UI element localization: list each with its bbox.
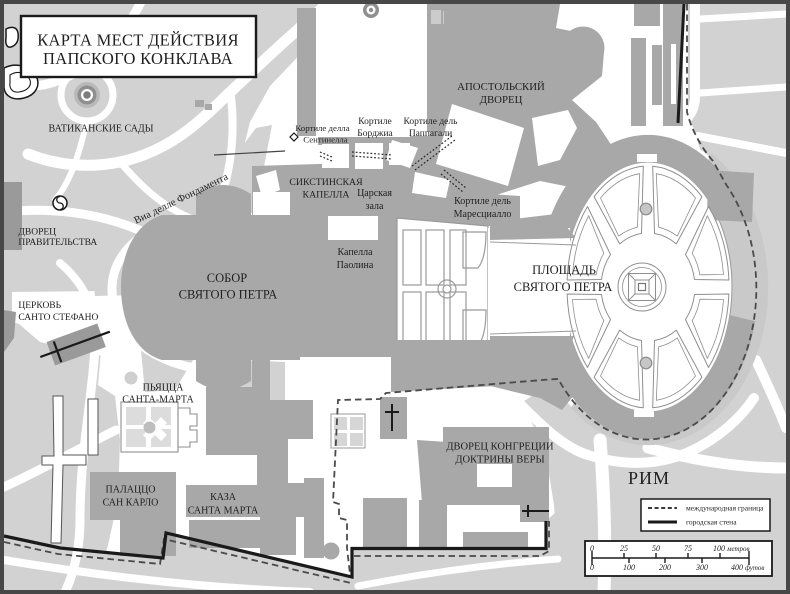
svg-text:300: 300 <box>695 563 708 572</box>
svg-text:КАПЕЛЛА: КАПЕЛЛА <box>303 190 350 201</box>
svg-text:городская стена: городская стена <box>686 518 737 527</box>
svg-text:ДВОРЕЦ КОНГРЕЦИИ: ДВОРЕЦ КОНГРЕЦИИ <box>446 442 554 453</box>
svg-text:САНТА МАРТА: САНТА МАРТА <box>188 506 259 517</box>
svg-text:0: 0 <box>590 544 594 553</box>
svg-text:АПОСТОЛЬСКИЙ: АПОСТОЛЬСКИЙ <box>457 81 545 93</box>
svg-text:Сентинелла: Сентинелла <box>303 135 348 145</box>
svg-text:ПЬЯЦЦА: ПЬЯЦЦА <box>143 383 185 394</box>
svg-text:Паппагали: Паппагали <box>409 129 452 139</box>
svg-text:ПРАВИТЕЛЬСТВА: ПРАВИТЕЛЬСТВА <box>18 238 97 248</box>
svg-text:ПЛОЩАДЬ: ПЛОЩАДЬ <box>532 263 596 277</box>
svg-text:Паолина: Паолина <box>337 260 374 271</box>
svg-text:САН КАРЛО: САН КАРЛО <box>103 498 159 509</box>
svg-text:ПАЛАЦЦО: ПАЛАЦЦО <box>106 485 156 496</box>
svg-text:САНТА-МАРТА: САНТА-МАРТА <box>122 395 194 406</box>
svg-text:Кортиле: Кортиле <box>358 117 391 127</box>
svg-text:РИМ: РИМ <box>628 468 670 488</box>
svg-text:СВЯТОГО ПЕТРА: СВЯТОГО ПЕТРА <box>514 280 613 294</box>
svg-text:зала: зала <box>366 201 384 212</box>
svg-text:Борджиа: Борджиа <box>357 129 393 139</box>
svg-text:ЦЕРКОВЬ: ЦЕРКОВЬ <box>18 301 61 311</box>
svg-text:международная граница: международная граница <box>686 504 764 513</box>
svg-text:КАРТА МЕСТ ДЕЙСТВИЯ: КАРТА МЕСТ ДЕЙСТВИЯ <box>37 31 239 50</box>
svg-text:400 футов: 400 футов <box>731 563 764 572</box>
svg-text:СИКСТИНСКАЯ: СИКСТИНСКАЯ <box>289 177 363 188</box>
svg-text:САНТО СТЕФАНО: САНТО СТЕФАНО <box>18 313 98 323</box>
svg-text:75: 75 <box>684 544 692 553</box>
svg-text:КАЗА: КАЗА <box>210 492 237 503</box>
svg-text:25: 25 <box>620 544 628 553</box>
svg-text:50: 50 <box>652 544 660 553</box>
svg-text:ДВОРЕЦ: ДВОРЕЦ <box>480 94 523 106</box>
svg-text:ДОКТРИНЫ ВЕРЫ: ДОКТРИНЫ ВЕРЫ <box>455 455 544 466</box>
svg-text:100: 100 <box>623 563 635 572</box>
svg-text:200: 200 <box>659 563 671 572</box>
svg-text:Кортиле делла: Кортиле делла <box>295 123 349 133</box>
svg-text:СОБОР: СОБОР <box>207 271 247 285</box>
svg-text:Капелла: Капелла <box>337 247 373 258</box>
svg-text:ПАПСКОГО КОНКЛАВА: ПАПСКОГО КОНКЛАВА <box>43 49 233 68</box>
svg-text:100 метров: 100 метров <box>713 544 750 553</box>
svg-text:СВЯТОГО ПЕТРА: СВЯТОГО ПЕТРА <box>179 288 278 302</box>
svg-text:ВАТИКАНСКИЕ САДЫ: ВАТИКАНСКИЕ САДЫ <box>49 124 154 135</box>
svg-text:Кортиле дель: Кортиле дель <box>404 117 459 127</box>
svg-text:Кортиле дель: Кортиле дель <box>454 196 511 207</box>
svg-text:ДВОРЕЦ: ДВОРЕЦ <box>18 228 56 238</box>
svg-text:0: 0 <box>590 563 594 572</box>
svg-text:Маресциалло: Маресциалло <box>454 209 512 220</box>
svg-text:Царская: Царская <box>357 188 392 199</box>
